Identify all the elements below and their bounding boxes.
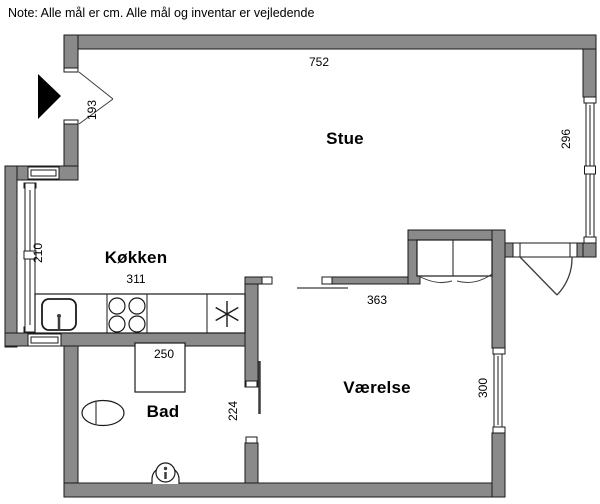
kitchen-width-dimension: 311 [116,272,156,286]
kokken-room-label: Køkken [86,248,186,268]
entry-dimension: 193 [85,90,99,130]
bad-room-label: Bad [113,402,213,422]
balcony-door-leaf [520,257,557,295]
stue-depth-dimension: 296 [559,119,573,159]
wall-balcony-door-left [505,243,513,257]
balcony-door-swing [557,257,572,295]
floor-plan: Note: Alle mål er cm. Alle mål og invent… [0,0,600,504]
wall-bay-left [5,166,17,347]
vaerelse-width-dimension: 363 [357,293,397,307]
passage-cap-right [322,277,332,284]
wall-bath-right-upper [245,277,258,387]
note-text: Note: Alle mål er cm. Alle mål og invent… [8,6,314,20]
wall-vaerelse-top [332,277,408,284]
stue-room-label: Stue [295,129,395,149]
washbasin-tap-dot [164,467,167,470]
stue-window-mullion [585,166,596,174]
bath-door-cap-top [246,381,257,387]
wardrobe-icon [417,240,492,276]
wall-bath-left [64,346,78,497]
bay-window-bottom [28,334,61,346]
window-cap [584,97,596,103]
wall-entry-above-door [64,35,78,68]
passage-cap-left [262,277,272,284]
wall-vaerelse-right-lower [492,433,505,497]
window-cap [493,427,505,433]
bay-window-top [28,167,59,179]
vaerelse-depth-dimension: 300 [476,368,490,408]
bad-depth-dimension: 224 [226,391,240,431]
wall-top [66,35,596,49]
window-cap [584,237,596,243]
wall-nook-top [408,230,505,240]
bath-door-cap-bottom [246,437,257,443]
balcony-door-cap-right [570,243,577,257]
wall-bottom [64,483,505,497]
entry-door-jamb-top [64,68,78,72]
stue-width-dimension: 752 [299,55,339,69]
wall-vaerelse-right-upper [492,230,505,348]
wall-stue-right-upper [583,49,596,97]
entrance-arrow-icon [38,74,61,119]
balcony-door-cap-left [513,243,520,257]
wall-bath-right-lower [245,443,258,483]
vaerelse-room-label: Værelse [327,378,427,398]
entry-door-jamb-bottom [64,120,78,124]
bad-width-dimension: 250 [144,347,184,361]
wall-stue-right-lower [583,243,596,257]
balcony-door-threshold [513,243,577,257]
sink-tap-dot [57,314,61,318]
window-cap [493,348,505,354]
kitchen-window-dimension: 210 [31,233,45,273]
